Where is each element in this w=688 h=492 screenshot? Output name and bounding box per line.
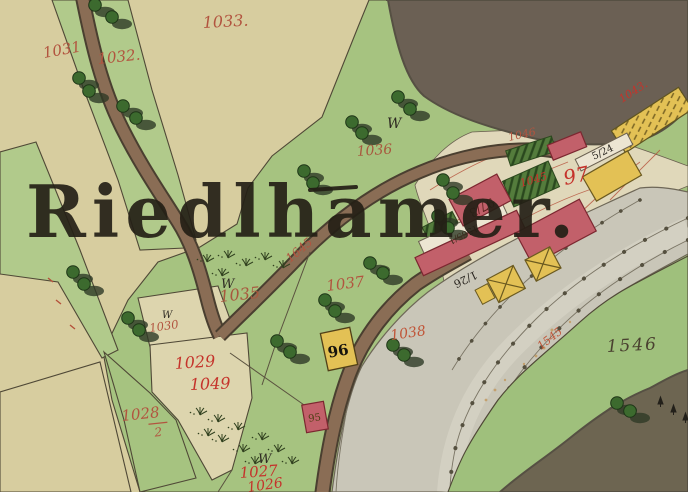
map-canvas: 1033. 1031 1032. 1036 1035 1030 1037 103…: [0, 0, 688, 492]
w-mark: W: [258, 452, 273, 467]
parcel-label-1036: 1036: [356, 142, 393, 160]
place-name-label: Riedlhamer.: [26, 169, 580, 254]
cadastral-map-riedlhamer: 1033. 1031 1032. 1036 1035 1030 1037 103…: [0, 0, 688, 492]
w-mark: W: [221, 277, 236, 292]
parcel-label-1546: 1546: [606, 334, 658, 357]
parcel-label-1049: 1049: [189, 374, 230, 394]
parcel-label-1033: 1033.: [202, 11, 249, 32]
house-label-95: 95: [308, 412, 322, 425]
house-label-96: 96: [326, 340, 350, 361]
w-mark: W: [162, 310, 173, 321]
parcel-label-1028-den: 2: [153, 425, 163, 440]
parcel-label-1029: 1029: [174, 351, 216, 373]
w-mark: W: [387, 116, 403, 132]
